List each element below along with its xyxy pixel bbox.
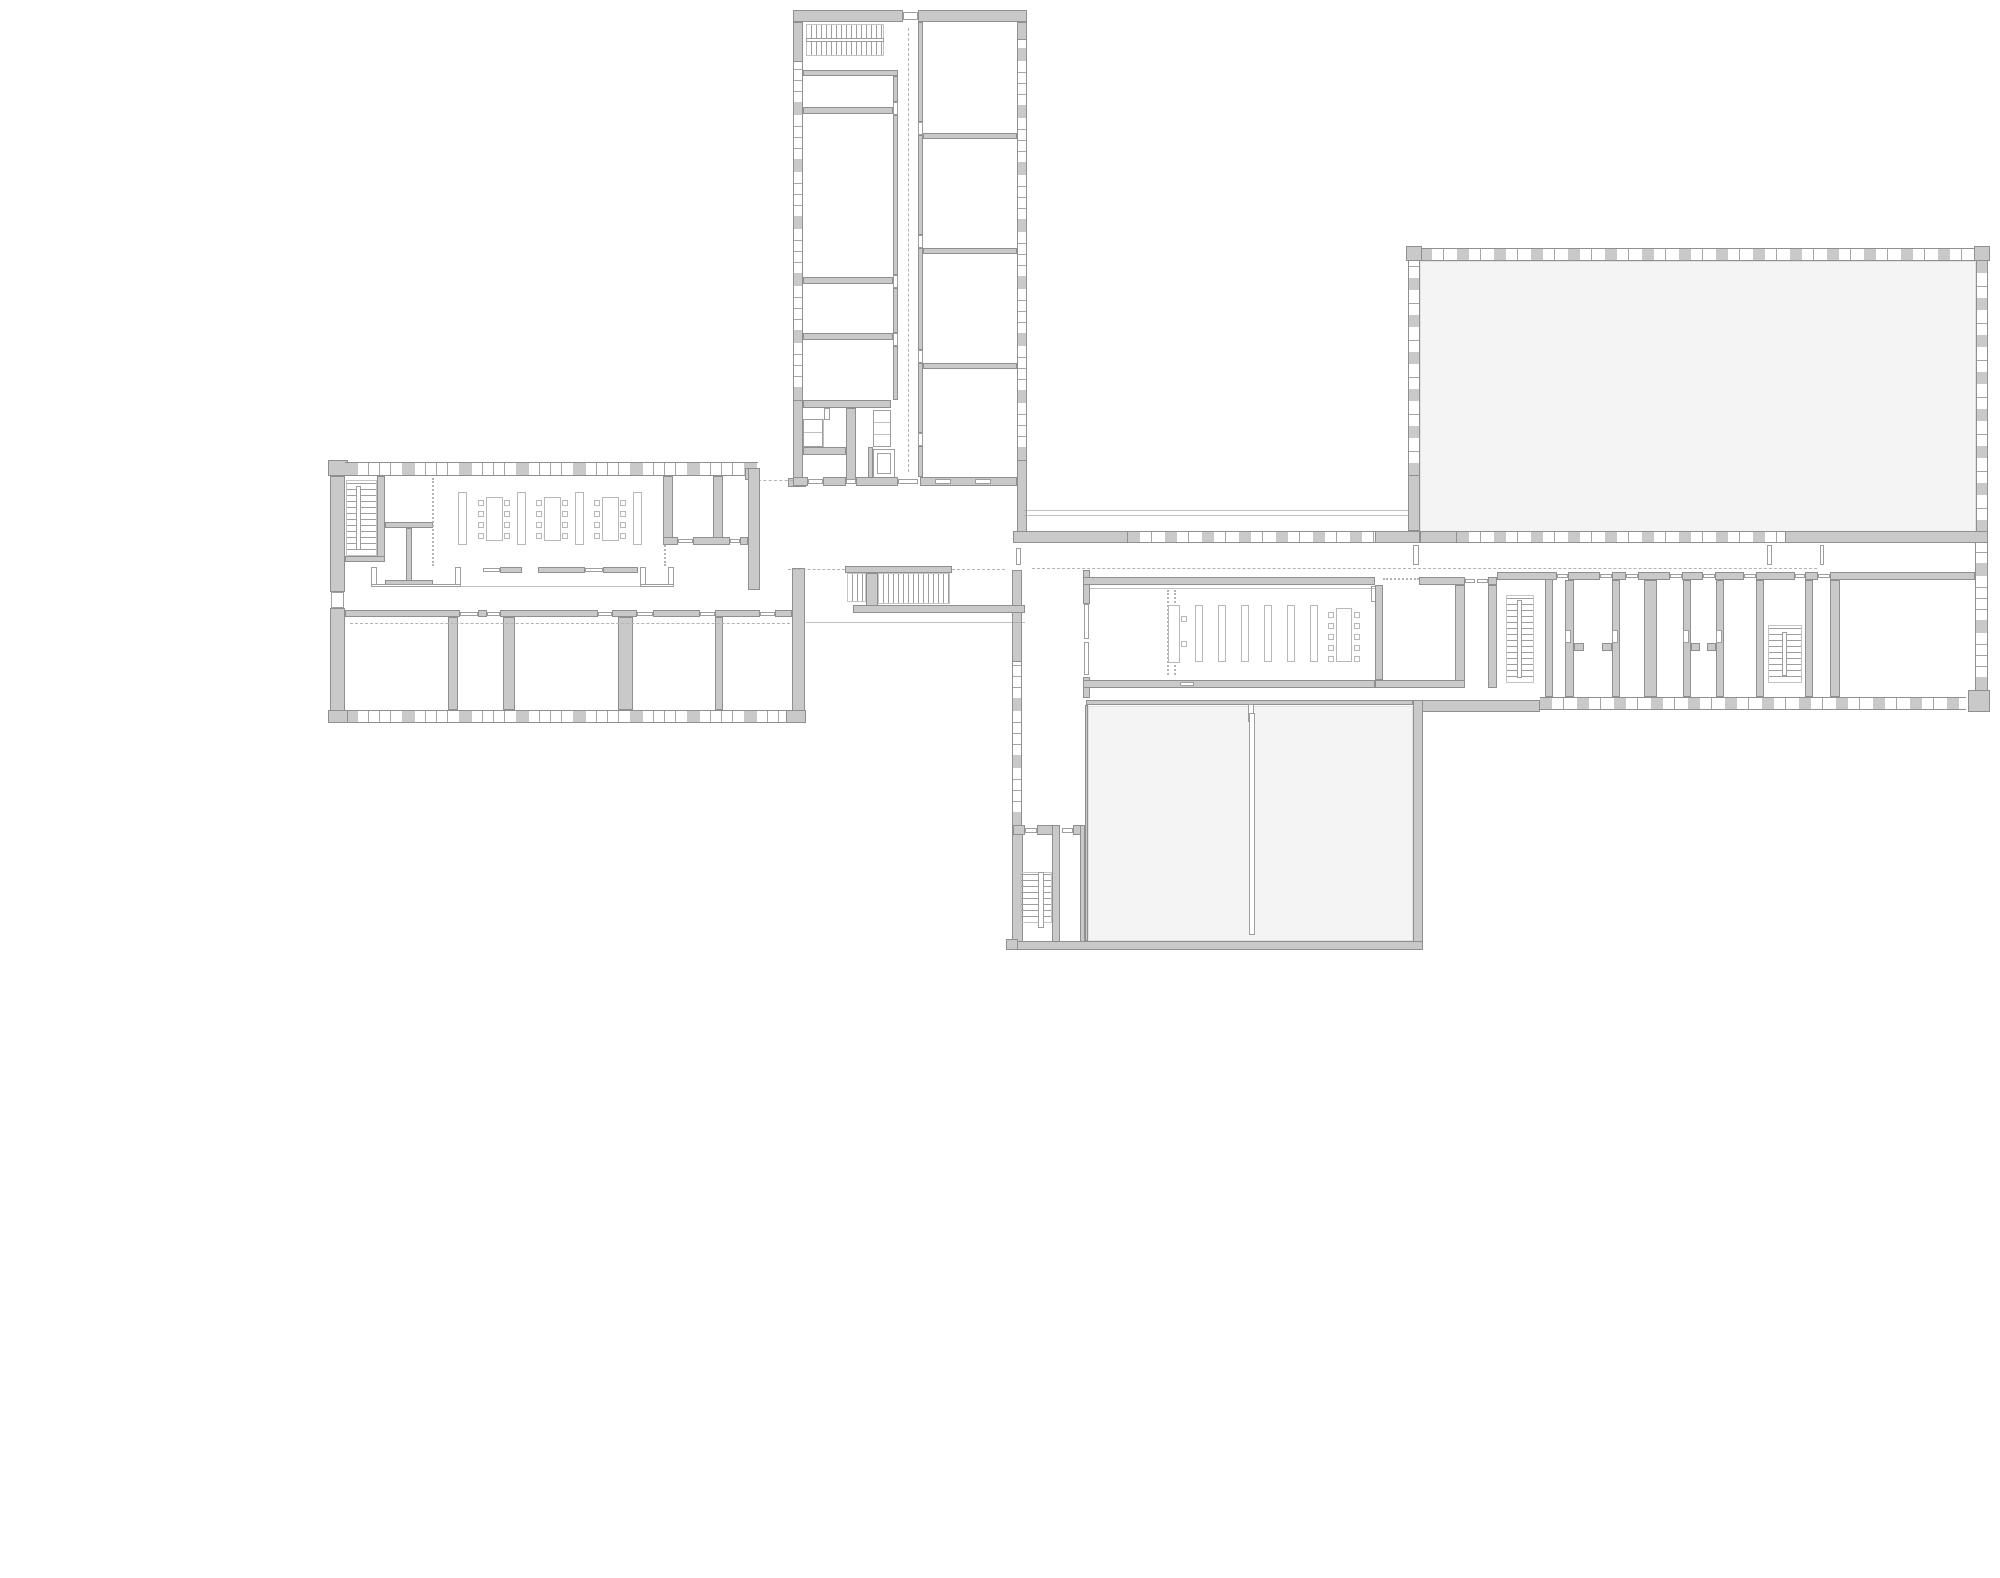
door-or-fixture-outline [1025,828,1037,833]
wall-segment [793,400,803,478]
door-or-fixture-outline [893,102,898,115]
furniture-table [1336,608,1352,662]
wall-segment [693,537,730,545]
door-or-fixture-outline [1180,682,1194,686]
chair [478,533,484,539]
window-band [1976,261,1988,532]
thin-line [873,434,891,435]
wall-segment [823,477,846,486]
furniture-table [544,497,561,541]
wall-segment [1974,246,1990,261]
wall-segment [846,408,856,480]
window-band [345,462,758,476]
wall-segment [803,447,846,455]
wall-segment [893,346,898,400]
chair [1328,612,1334,618]
wall-segment [1052,825,1060,943]
wall-segment [803,277,893,284]
window-band [1017,40,1027,460]
chair [594,533,600,539]
wall-segment [1420,531,1457,543]
wall-segment [618,617,633,710]
door-or-fixture-outline [1820,545,1824,565]
chair [594,511,600,517]
door-or-fixture-outline [1744,574,1756,578]
dashed-reference-line [908,28,909,472]
chair [620,511,626,517]
door-or-fixture-outline [585,568,603,572]
door-or-fixture-outline [700,612,715,616]
furniture-table [1218,605,1226,662]
chair [594,522,600,528]
wall-segment [1413,700,1540,712]
furniture-table [517,492,526,545]
wall-segment [1682,572,1703,580]
window-band [1408,261,1420,475]
wall-segment [1013,531,1128,543]
wall-segment [845,566,952,573]
window-band [1540,697,1966,710]
wall-segment [406,528,412,585]
wall-segment [793,10,903,22]
wall-segment [792,568,805,718]
door-or-fixture-outline [918,350,923,363]
wall-segment [1488,585,1497,688]
door-or-fixture-outline [331,592,344,608]
door-or-fixture-outline [1465,579,1475,583]
thin-line [806,622,1025,623]
wall-segment [853,605,1025,613]
wall-segment [1830,580,1840,697]
wall-segment [1568,572,1600,580]
door-or-fixture-outline [598,612,612,616]
wall-segment [1488,577,1497,585]
furniture-table [1168,605,1180,663]
floor-plan [0,0,2000,1578]
chair [1181,641,1187,647]
dashed-reference-line [952,569,1005,570]
door-or-fixture-outline [975,479,991,484]
wall-segment [740,537,748,545]
chair [478,522,484,528]
chair [562,522,568,528]
wall-segment [538,567,585,573]
wall-segment [715,617,723,710]
wall-segment [663,537,678,545]
dashed-reference-line [758,480,793,481]
door-or-fixture-outline [1600,574,1612,578]
wall-segment [856,477,898,486]
door-or-fixture-outline [460,612,478,616]
door-or-fixture-outline [1084,604,1089,639]
window-band [1420,248,1976,261]
dotted-partition-line [432,478,434,566]
furniture-table [458,492,467,545]
window-band [1457,531,1785,543]
chair [504,511,510,517]
chair [620,500,626,506]
window-band [1012,662,1022,825]
wall-segment [500,567,522,573]
wall-segment [1375,585,1383,680]
furniture-table [575,492,584,545]
door-or-fixture-outline [935,479,951,484]
wall-segment [1602,643,1612,651]
door-or-fixture-outline [1084,642,1089,675]
wall-segment [923,133,1017,139]
door-or-fixture-outline [898,479,918,484]
chair [536,500,542,506]
chair [536,533,542,539]
door-or-fixture-outline [760,612,775,616]
chair [1354,623,1360,629]
wall-segment [653,610,700,617]
door-or-fixture-outline [893,275,898,288]
door-or-fixture-outline [1670,574,1682,578]
chair [1354,656,1360,662]
furniture-table [486,497,503,541]
wall-segment [1083,680,1375,688]
door-or-fixture-outline [873,410,891,447]
door-or-fixture-outline [1062,828,1073,833]
wall-segment [1644,580,1657,697]
window-band [1975,543,1988,690]
stair-rail [1038,872,1044,928]
door-or-fixture-outline [918,433,923,446]
door-or-fixture-outline [903,12,918,20]
chair [536,511,542,517]
wall-segment [1545,577,1553,697]
wall-segment [1408,475,1420,531]
chair [562,533,568,539]
thin-line [1090,588,1375,589]
furniture-table [1287,605,1295,662]
door-or-fixture-outline [1016,548,1021,565]
wall-segment [1638,572,1670,580]
thin-line [803,432,823,433]
door-or-fixture-outline [1477,579,1488,583]
dashed-reference-line [1032,568,1817,569]
wall-segment [478,610,487,617]
wall-segment [503,617,515,710]
wall-segment [893,288,898,333]
wall-segment [1691,643,1700,651]
chair [478,500,484,506]
thin-line [1024,515,1408,516]
wall-segment [345,610,460,617]
wall-segment [918,135,923,235]
wall-segment [1830,572,1975,580]
wall-segment [918,363,923,433]
wall-segment [603,567,638,573]
wall-segment [1612,572,1626,580]
wall-segment [1013,825,1025,835]
wall-segment [918,10,1027,22]
chair [1354,612,1360,618]
door-or-fixture-outline [1767,545,1772,565]
wall-segment [1805,572,1818,580]
door-or-fixture-outline [483,568,500,572]
stair-treads [346,480,377,556]
wall-segment [1083,577,1375,585]
wall-segment [803,333,893,340]
stair-treads [878,573,950,604]
door-or-fixture-outline [808,479,823,484]
door-or-fixture-outline [1795,574,1805,578]
chair [504,500,510,506]
door-or-fixture-outline [1565,630,1571,643]
wall-segment [345,556,385,562]
wall-segment [918,22,923,122]
wall-segment [1419,577,1465,585]
wall-segment [775,610,792,617]
chair [504,533,510,539]
wall-segment [918,248,923,350]
door-or-fixture-outline [1626,574,1638,578]
wall-segment [1375,680,1465,688]
furniture-table [602,497,619,541]
chair [620,522,626,528]
wall-segment [1413,700,1423,949]
door-or-fixture-outline [1612,630,1618,643]
window-band [345,710,792,723]
door-or-fixture-outline [846,479,856,484]
door-or-fixture-outline [803,419,823,447]
door-or-fixture-outline [1818,574,1830,578]
chair [1328,634,1334,640]
chair [504,522,510,528]
wall-segment [1756,572,1795,580]
wall-segment [1406,246,1422,261]
thin-line [1024,510,1408,511]
stair-rail [1517,600,1522,678]
window-band [1128,531,1375,543]
door-or-fixture-outline [1413,545,1419,565]
wall-pilaster [328,710,348,723]
wall-segment [793,477,808,486]
wall-segment [1013,941,1423,950]
wall-segment [803,70,898,76]
door-or-fixture-outline [1703,574,1715,578]
wall-segment [803,400,891,408]
door-or-fixture-outline [678,539,693,543]
chair [562,500,568,506]
wall-segment [500,610,598,617]
chair [594,500,600,506]
wall-segment [1707,643,1716,651]
furniture-table [1195,605,1203,662]
wall-segment [330,476,345,592]
wall-segment [748,468,760,590]
wall-segment [1715,572,1744,580]
door-or-fixture-outline [1716,630,1722,643]
wall-segment [448,617,458,710]
door-or-fixture-outline [877,453,891,474]
thin-line [823,419,824,447]
wall-segment [1805,580,1813,697]
wall-segment [715,610,760,617]
wall-segment [1968,690,1990,712]
door-or-fixture-outline [1557,574,1568,578]
chair [1328,623,1334,629]
wall-segment [1017,22,1027,40]
chair [1328,645,1334,651]
chair [562,511,568,517]
dashed-reference-line [788,569,845,570]
wall-segment [1574,643,1584,651]
stair-rail [1782,632,1787,676]
wall-segment [923,248,1017,254]
wall-segment [1083,570,1090,604]
wall-segment [1085,705,1088,941]
wall-segment [1497,572,1557,580]
chair [620,533,626,539]
wall-segment [377,476,385,560]
wall-segment [663,476,673,545]
chair [1354,645,1360,651]
chair [1354,634,1360,640]
door-or-fixture-outline [637,612,653,616]
wall-segment [1756,580,1764,697]
door-or-fixture-outline [730,539,740,543]
chair [1181,616,1187,622]
dotted-partition-line [1383,578,1419,580]
door-or-fixture-outline [1249,713,1255,935]
door-or-fixture-outline [918,235,923,248]
chair [1328,656,1334,662]
stair-rail [356,486,361,550]
wall-segment [330,608,345,718]
furniture-table [1264,605,1272,662]
wall-segment [923,363,1017,369]
wall-segment [1785,531,1988,543]
wall-segment [893,115,898,275]
dashed-reference-line [350,623,790,624]
wall-segment [1455,585,1465,688]
door-or-fixture-outline [824,408,830,420]
chair [478,511,484,517]
door-or-fixture-outline [893,333,898,346]
door-or-fixture-outline [1683,630,1689,643]
wall-segment [893,76,898,102]
stair-treads [847,573,866,602]
wall-segment [803,107,893,114]
thin-line [371,586,663,587]
wall-pilaster [786,710,806,723]
stair-rail [806,38,884,42]
door-or-fixture-outline [487,612,500,616]
wall-segment [866,573,878,608]
furniture-table [633,492,642,545]
wall-segment [1012,570,1022,662]
window-band [793,62,803,400]
stair-treads [1020,872,1052,923]
wall-segment [713,476,723,545]
hall-floor-area [1420,261,1976,532]
wall-segment [793,22,803,62]
wall-pilaster [1006,939,1018,950]
wall-segment [1375,531,1420,543]
furniture-table [1241,605,1249,662]
wall-segment [612,610,637,617]
chair [536,522,542,528]
thin-line [873,422,891,423]
wall-segment [918,446,923,477]
furniture-table [1310,605,1318,662]
